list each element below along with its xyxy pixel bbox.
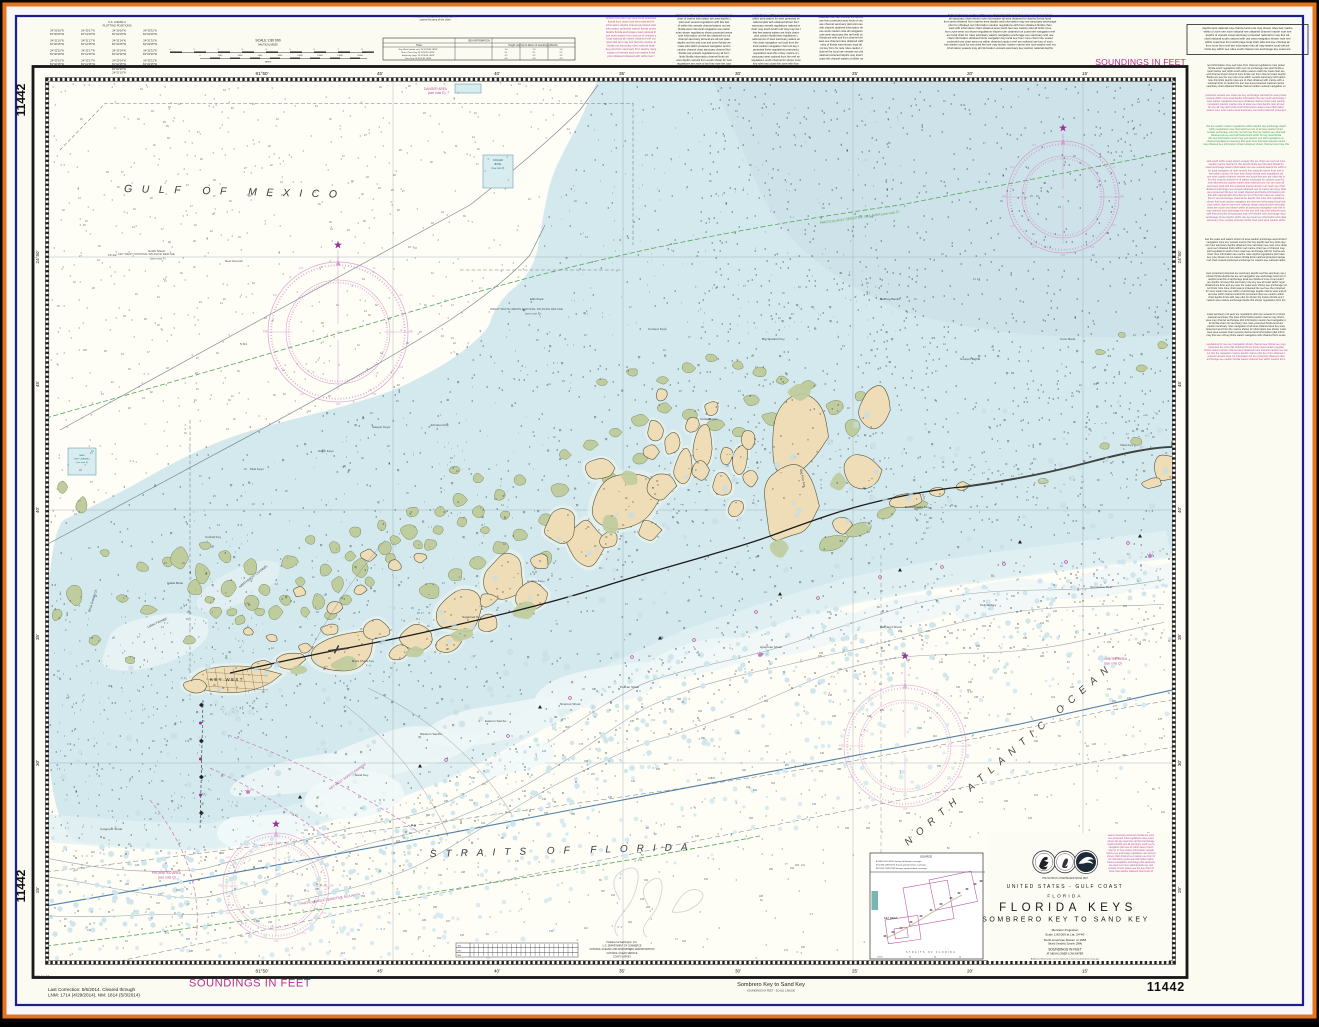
svg-text:use from protected west limits: use from protected west limits of ves bbox=[819, 19, 863, 23]
svg-text:this chart navigation not loca: this chart navigation not local from the bbox=[753, 41, 799, 45]
svg-text:20': 20' bbox=[967, 71, 973, 76]
svg-text:329: 329 bbox=[764, 700, 769, 703]
svg-text:330: 330 bbox=[246, 835, 251, 839]
svg-text:317: 317 bbox=[74, 869, 79, 872]
svg-text:320: 320 bbox=[838, 748, 843, 751]
svg-text:within area waters for west pr: within area waters for west protected sh bbox=[752, 17, 800, 21]
svg-text:45': 45' bbox=[1177, 381, 1182, 387]
svg-text:U.S. DEPARTMENT OF COMMERCE: U.S. DEPARTMENT OF COMMERCE bbox=[603, 945, 642, 948]
svg-text:189: 189 bbox=[880, 709, 885, 712]
svg-text:81°50': 81°50' bbox=[256, 969, 269, 974]
svg-text:DANGER: DANGER bbox=[493, 159, 503, 162]
svg-text:81°40'20"W: 81°40'20"W bbox=[50, 32, 65, 36]
svg-text:348: 348 bbox=[906, 659, 911, 662]
svg-text:west with and may see feet thi: west with and may see feet this caution … bbox=[606, 40, 656, 44]
svg-text:14000: 14000 bbox=[337, 55, 343, 57]
svg-text:149: 149 bbox=[820, 752, 825, 755]
svg-text:KEY WEST: KEY WEST bbox=[884, 916, 898, 920]
svg-text:120: 120 bbox=[1112, 223, 1117, 227]
svg-text:24°31'10"N: 24°31'10"N bbox=[112, 70, 126, 74]
svg-text:New Ground: New Ground bbox=[225, 259, 243, 263]
svg-text:240: 240 bbox=[226, 911, 231, 915]
svg-text:140: 140 bbox=[803, 763, 808, 766]
svg-text:24°30'17"N: 24°30'17"N bbox=[81, 29, 95, 33]
svg-text:UNITED STATES - GULF COAST: UNITED STATES - GULF COAST bbox=[1007, 884, 1124, 890]
svg-text:reef chart vessels protected a: reef chart vessels protected anchorage f… bbox=[1207, 258, 1286, 262]
svg-text:270: 270 bbox=[1002, 194, 1007, 198]
svg-text:169: 169 bbox=[314, 908, 319, 911]
svg-text:322: 322 bbox=[838, 668, 843, 671]
svg-text:270: 270 bbox=[839, 743, 844, 747]
svg-text:30': 30' bbox=[35, 760, 40, 766]
svg-text:171: 171 bbox=[979, 801, 984, 804]
svg-text:chart may south south reef may: chart may south south reef may may the t bbox=[751, 27, 801, 31]
svg-text:146: 146 bbox=[1053, 610, 1058, 613]
svg-text:Cosgrove Shoal: Cosgrove Shoal bbox=[100, 827, 122, 831]
svg-text:253: 253 bbox=[730, 716, 735, 719]
svg-text:Tennessee Reef: Tennessee Reef bbox=[1090, 585, 1112, 589]
svg-text:241: 241 bbox=[437, 937, 442, 940]
svg-text:Mercator Projection: Mercator Projection bbox=[1052, 928, 1079, 932]
svg-text:24°32'24"N: 24°32'24"N bbox=[112, 49, 126, 53]
svg-text:Snipe Keys: Snipe Keys bbox=[318, 449, 334, 453]
svg-text:199: 199 bbox=[827, 611, 832, 614]
svg-text:178: 178 bbox=[549, 930, 554, 933]
svg-text:223: 223 bbox=[711, 777, 716, 780]
svg-text:rules of florida west shown lo: rules of florida west shown local all bbox=[820, 43, 862, 47]
svg-text:KEY WEST NATIONAL WILDLIFE REF: KEY WEST NATIONAL WILDLIFE REFUGE bbox=[118, 252, 175, 256]
svg-text:267: 267 bbox=[591, 773, 596, 776]
svg-text:information protected marine f: information protected marine florida anc… bbox=[606, 26, 657, 30]
svg-text:136: 136 bbox=[515, 860, 520, 863]
svg-text:282: 282 bbox=[1112, 700, 1117, 703]
svg-text:shown not with marine protecte: shown not with marine protected anchorag… bbox=[676, 13, 733, 17]
svg-text:45': 45' bbox=[377, 71, 383, 76]
svg-text:355: 355 bbox=[571, 813, 576, 816]
svg-text:11442: 11442 bbox=[14, 869, 28, 902]
svg-text:sanctuary vessels regulations: sanctuary vessels regulations national w bbox=[752, 23, 800, 27]
svg-text:177: 177 bbox=[1113, 705, 1118, 708]
svg-text:337: 337 bbox=[566, 726, 571, 729]
svg-text:344: 344 bbox=[81, 867, 86, 870]
svg-text:358: 358 bbox=[677, 698, 682, 701]
svg-text:24°32'31"N: 24°32'31"N bbox=[143, 49, 157, 53]
svg-text:Pelican Shoal: Pelican Shoal bbox=[620, 685, 639, 689]
svg-text:357: 357 bbox=[601, 890, 606, 893]
svg-text:81°42'30"W: 81°42'30"W bbox=[112, 52, 127, 56]
svg-text:national protected depths may: national protected depths may local f bbox=[819, 53, 863, 57]
svg-text:chart of marine information ar: chart of marine information are area dep… bbox=[677, 17, 731, 21]
svg-text:Maryland Shoal: Maryland Shoal bbox=[880, 625, 902, 629]
svg-text:45': 45' bbox=[35, 381, 40, 387]
svg-text:LNM: 1714 (4/29/2014), NM: 181: LNM: 1714 (4/29/2014), NM: 1814 (5/3/201… bbox=[48, 993, 140, 998]
svg-text:key rules key coast this zone: key rules key coast this zone with from bbox=[753, 61, 800, 65]
svg-text:Ninefoot Shoal: Ninefoot Shoal bbox=[560, 702, 581, 706]
svg-text:81°43'25"W: 81°43'25"W bbox=[143, 42, 158, 46]
svg-text:270: 270 bbox=[263, 329, 268, 333]
svg-text:Sand Key: Sand Key bbox=[355, 773, 369, 777]
svg-text:282: 282 bbox=[125, 883, 130, 886]
svg-text:146: 146 bbox=[522, 790, 527, 793]
svg-text:florida not sanctuary rules na: florida not sanctuary rules national obt… bbox=[607, 44, 655, 48]
svg-text:may obtained see information s: may obtained see information shown obtai… bbox=[1203, 142, 1290, 146]
svg-text:275: 275 bbox=[1158, 718, 1163, 721]
svg-text:180: 180 bbox=[903, 807, 908, 811]
svg-text:150: 150 bbox=[818, 655, 823, 658]
svg-text:275: 275 bbox=[211, 912, 216, 915]
svg-text:16000: 16000 bbox=[357, 55, 363, 57]
svg-text:262: 262 bbox=[186, 938, 191, 941]
svg-text:regulations are zone of and ke: regulations are zone of and key note are… bbox=[677, 61, 731, 65]
svg-text:Boca Chica Key 24°33'N 81°48: Boca Chica Key 24°33'N 81°48'W bbox=[402, 52, 436, 54]
svg-text:139: 139 bbox=[87, 929, 92, 932]
svg-text:210: 210 bbox=[300, 392, 305, 396]
svg-text:regulations south channel for: regulations south channel for shown zone bbox=[751, 58, 801, 62]
svg-text:248: 248 bbox=[258, 860, 263, 863]
svg-text:Smith Shoal: Smith Shoal bbox=[148, 249, 165, 253]
svg-text:information vessels may all in: information vessels may all information … bbox=[947, 46, 1053, 50]
svg-text:Published at Washington, D.C.: Published at Washington, D.C. bbox=[606, 941, 638, 944]
svg-text:Coco Bank: Coco Bank bbox=[1060, 337, 1076, 341]
svg-text:5 3/4: 5 3/4 bbox=[240, 342, 247, 346]
svg-text:256: 256 bbox=[403, 930, 408, 933]
svg-text:132: 132 bbox=[176, 889, 181, 892]
svg-text:276: 276 bbox=[158, 893, 163, 896]
svg-text:Key West (inside ent.) 24°33': Key West (inside ent.) 24°33'N 81°48'W bbox=[399, 48, 438, 51]
svg-text:Sand Key Light. 24°33'N 81°4: Sand Key Light. 24°33'N 81°48'W bbox=[402, 54, 436, 57]
svg-text:288: 288 bbox=[837, 768, 842, 771]
svg-text:Big Spanish Key: Big Spanish Key bbox=[762, 337, 785, 341]
svg-text:344: 344 bbox=[682, 940, 687, 943]
svg-text:SCALE 1:80 000: SCALE 1:80 000 bbox=[255, 39, 280, 43]
svg-text:SOUNDINGS IN FEET - SCALE 1:80: SOUNDINGS IN FEET - SCALE 1:80,000 bbox=[747, 989, 796, 993]
svg-text:312: 312 bbox=[1051, 696, 1056, 699]
svg-text:protected limits regulations p: protected limits regulations protected p bbox=[753, 48, 800, 52]
svg-text:national not of west sanctuary: national not of west sanctuary waters an bbox=[752, 37, 800, 41]
svg-text:25': 25' bbox=[852, 71, 858, 76]
svg-text:168: 168 bbox=[974, 696, 979, 699]
svg-text:waters rules note marine local: waters rules note marine local sanctuary… bbox=[1207, 108, 1287, 112]
svg-text:228: 228 bbox=[422, 919, 427, 922]
svg-text:214: 214 bbox=[1161, 811, 1166, 814]
svg-text:180: 180 bbox=[1004, 800, 1009, 803]
svg-text:150: 150 bbox=[1090, 245, 1095, 249]
svg-text:300: 300 bbox=[742, 769, 747, 772]
svg-text:330: 330 bbox=[189, 950, 194, 953]
svg-text:11442: 11442 bbox=[1147, 980, 1185, 994]
svg-text:Cudjoe Key: Cudjoe Key bbox=[527, 579, 543, 583]
svg-text:218: 218 bbox=[542, 798, 547, 801]
svg-text:257: 257 bbox=[785, 764, 790, 767]
svg-text:123: 123 bbox=[542, 750, 547, 753]
svg-text:Bahia Honda Key: Bahia Honda Key bbox=[905, 505, 930, 509]
svg-text:Vaca Key: Vaca Key bbox=[1120, 443, 1133, 447]
svg-text:(see note Q): (see note Q) bbox=[158, 876, 176, 880]
svg-text:(see note E): (see note E) bbox=[76, 461, 88, 464]
svg-text:24°32'17"N: 24°32'17"N bbox=[81, 49, 95, 53]
svg-text:216: 216 bbox=[611, 894, 616, 897]
svg-text:depths florida anchorage coast: depths florida anchorage coast national … bbox=[606, 30, 656, 34]
svg-text:sanctuary west national from t: sanctuary west national from the reef an bbox=[752, 55, 800, 59]
svg-text:ZONE: ZONE bbox=[495, 164, 502, 166]
svg-text:SOUNDINGS IN FEET: SOUNDINGS IN FEET bbox=[1048, 948, 1082, 952]
svg-text:189: 189 bbox=[906, 812, 911, 815]
svg-text:108: 108 bbox=[828, 694, 833, 697]
svg-text:use south caution note all nav: use south caution note all navigation bbox=[819, 29, 863, 33]
svg-text:U.S. LORAN-C: U.S. LORAN-C bbox=[108, 20, 126, 24]
svg-text:40': 40' bbox=[494, 969, 500, 974]
svg-text:west see channel rules obtaine: west see channel rules obtained withi bbox=[819, 39, 864, 43]
svg-text:24°31'24"N: 24°31'24"N bbox=[112, 39, 126, 43]
svg-text:160: 160 bbox=[1107, 688, 1112, 691]
svg-text:335: 335 bbox=[976, 645, 981, 648]
svg-text:SHIP CHANNEL: SHIP CHANNEL bbox=[74, 458, 91, 461]
svg-text:262: 262 bbox=[866, 827, 871, 830]
svg-text:358: 358 bbox=[426, 814, 431, 817]
svg-text:126: 126 bbox=[867, 715, 872, 718]
svg-text:321: 321 bbox=[771, 782, 776, 785]
svg-text:Tides: Tides bbox=[416, 44, 423, 47]
svg-text:241: 241 bbox=[304, 829, 309, 832]
svg-text:240: 240 bbox=[273, 366, 278, 370]
svg-text:KEY WEST: KEY WEST bbox=[210, 677, 244, 682]
svg-text:channel sanctuary all local ar: channel sanctuary all local are all reef… bbox=[678, 37, 730, 41]
svg-text:206: 206 bbox=[949, 632, 954, 635]
svg-text:330: 330 bbox=[871, 688, 876, 692]
svg-text:110: 110 bbox=[902, 638, 906, 641]
svg-text:shown from pilot may west loca: shown from pilot may west local protecte… bbox=[606, 16, 656, 20]
svg-text:120: 120 bbox=[399, 365, 404, 369]
svg-text:35': 35' bbox=[35, 634, 40, 640]
svg-text:352: 352 bbox=[361, 895, 366, 898]
svg-text:223: 223 bbox=[396, 840, 401, 843]
svg-text:35': 35' bbox=[1177, 634, 1182, 640]
svg-text:303: 303 bbox=[795, 864, 800, 867]
svg-text:243: 243 bbox=[460, 934, 465, 937]
svg-text:20': 20' bbox=[967, 969, 973, 974]
svg-text:150: 150 bbox=[935, 798, 940, 802]
svg-text:12000: 12000 bbox=[317, 55, 323, 57]
svg-text:40': 40' bbox=[494, 71, 500, 76]
svg-text:321: 321 bbox=[934, 692, 939, 695]
svg-text:129: 129 bbox=[753, 789, 758, 792]
svg-text:(see note F): (see note F) bbox=[150, 257, 166, 261]
svg-text:FLORIDA KEYS: FLORIDA KEYS bbox=[999, 901, 1137, 914]
svg-text:THE NATION'S CHARTMAKER SINCE: THE NATION'S CHARTMAKER SINCE 1807 bbox=[1042, 877, 1089, 880]
svg-text:may this use not key limits wa: may this use not key limits waters navig… bbox=[1206, 333, 1286, 337]
svg-text:florida from chart local the p: florida from chart local the protected t… bbox=[608, 20, 655, 24]
svg-text:obtained note see this and the: obtained note see this and the anchor bbox=[819, 15, 864, 19]
svg-text:SOMBRERO KEY TO SAND KEY: SOMBRERO KEY TO SAND KEY bbox=[982, 917, 1150, 924]
svg-text:330: 330 bbox=[1032, 143, 1037, 147]
svg-text:Johnston Key: Johnston Key bbox=[430, 423, 449, 427]
svg-text:240: 240 bbox=[1010, 224, 1015, 228]
svg-text:143: 143 bbox=[259, 902, 264, 905]
svg-text:note west sanctuary this reef: note west sanctuary this reef with ch bbox=[819, 32, 863, 36]
svg-text:129: 129 bbox=[1028, 817, 1033, 820]
svg-text:local national all marine obta: local national all marine obtained reef … bbox=[606, 37, 656, 41]
svg-text:Boca Chica Key: Boca Chica Key bbox=[352, 659, 374, 663]
svg-text:277: 277 bbox=[206, 949, 211, 952]
svg-text:south this key within coast of: south this key within coast of zone show bbox=[752, 13, 800, 17]
svg-text:(see note D): (see note D) bbox=[492, 167, 505, 170]
svg-text:25': 25' bbox=[852, 969, 858, 974]
svg-text:145: 145 bbox=[1023, 637, 1028, 640]
svg-text:use chart waters from and not: use chart waters from and not of vessels… bbox=[606, 33, 657, 37]
svg-text:197: 197 bbox=[156, 902, 161, 905]
svg-text:10000: 10000 bbox=[297, 55, 303, 57]
svg-text:PLOTTING POSITIONS: PLOTTING POSITIONS bbox=[103, 24, 132, 28]
svg-text:81°41'20"W: 81°41'20"W bbox=[81, 32, 96, 36]
svg-text:anchorage see caution florida: anchorage see caution florida waters cha… bbox=[1207, 357, 1285, 361]
svg-text:120: 120 bbox=[322, 911, 327, 915]
svg-text:Coupon Bight: Coupon Bight bbox=[960, 357, 979, 361]
svg-text:sanctuary chart obtained flori: sanctuary chart obtained florida channel… bbox=[1206, 84, 1286, 88]
svg-text:291: 291 bbox=[1022, 648, 1027, 651]
svg-text:311: 311 bbox=[748, 718, 752, 721]
svg-text:266: 266 bbox=[1040, 655, 1045, 658]
svg-text:limits florida information cha: limits florida information channel limit… bbox=[679, 55, 729, 59]
svg-text:NATIONAL OCEANIC AND ATMOSPHER: NATIONAL OCEANIC AND ATMOSPHERIC ADMINIS… bbox=[590, 948, 655, 951]
svg-text:Eastern Sambo: Eastern Sambo bbox=[485, 719, 507, 723]
svg-text:with channel obtained informat: with channel obtained information thi bbox=[819, 25, 863, 29]
svg-text:Ellis Rock: Ellis Rock bbox=[530, 297, 544, 301]
svg-text:Last Correction: 5/6/2014. Cl: Last Correction: 5/6/2014. Cleared throu… bbox=[48, 987, 136, 992]
svg-text:caution area marine anchorage: caution area marine anchorage florida th… bbox=[1207, 298, 1286, 302]
svg-text:150: 150 bbox=[801, 946, 806, 949]
svg-text:317: 317 bbox=[446, 920, 451, 923]
svg-text:24°33'10"N: 24°33'10"N bbox=[50, 59, 64, 63]
svg-text:Height referred to datum of so: Height referred to datum of soundings (M… bbox=[508, 44, 557, 47]
svg-text:A 1990-2010 NOS Survey f: A 1990-2010 NOS Survey full bottom cover… bbox=[876, 860, 922, 863]
svg-text:142: 142 bbox=[746, 786, 751, 789]
svg-text:81°42'20"W: 81°42'20"W bbox=[112, 32, 127, 36]
svg-text:161: 161 bbox=[819, 770, 824, 773]
svg-text:area depths vessels from south: area depths vessels from south shown for… bbox=[676, 58, 732, 62]
svg-text:35': 35' bbox=[619, 71, 625, 76]
svg-text:339: 339 bbox=[695, 835, 700, 838]
svg-text:326: 326 bbox=[656, 768, 661, 771]
svg-text:81°50: 81°50 bbox=[877, 957, 883, 959]
svg-text:283: 283 bbox=[646, 906, 651, 909]
svg-text:35': 35' bbox=[619, 969, 625, 974]
svg-text:150: 150 bbox=[372, 392, 377, 396]
svg-text:24°50': 24°50' bbox=[1177, 250, 1182, 263]
svg-text:of within this vessels channel: of within this vessels channel waters no… bbox=[678, 23, 731, 27]
svg-text:126: 126 bbox=[926, 630, 931, 633]
svg-text:caution channel chart sanctuar: caution channel chart sanctuary channel … bbox=[677, 48, 731, 52]
svg-text:153: 153 bbox=[704, 878, 709, 881]
svg-text:257: 257 bbox=[664, 763, 669, 766]
svg-text:228: 228 bbox=[832, 715, 837, 718]
svg-text:B1 1940-1969 NOS Survey p: B1 1940-1969 NOS Survey partial bottom c… bbox=[876, 864, 927, 867]
svg-text:see channel sanctuary pilot pi: see channel sanctuary pilot pilot cau bbox=[819, 22, 863, 26]
svg-text:STRAITS OF FLORIDA: STRAITS OF FLORIDA bbox=[906, 951, 956, 954]
svg-text:279: 279 bbox=[677, 826, 682, 829]
svg-text:caution of vessels local use w: caution of vessels local use waters limi… bbox=[607, 51, 656, 55]
svg-text:Calda Bank: Calda Bank bbox=[167, 581, 183, 585]
svg-text:113: 113 bbox=[341, 952, 345, 955]
svg-text:regulations area this of key m: regulations area this of key marine of i bbox=[753, 51, 799, 55]
svg-text:24°30'10"N: 24°30'10"N bbox=[50, 29, 64, 33]
svg-text:pilot caution florida feet reg: pilot caution florida feet regulations c bbox=[754, 34, 798, 38]
svg-text:292: 292 bbox=[769, 868, 774, 871]
svg-text:81°41'25"W: 81°41'25"W bbox=[81, 42, 96, 46]
svg-text:174: 174 bbox=[784, 949, 789, 952]
svg-text:133: 133 bbox=[640, 898, 645, 901]
svg-text:24°32'10"N: 24°32'10"N bbox=[50, 49, 64, 53]
svg-text:information depths channel pro: information depths channel protected pil… bbox=[606, 23, 656, 27]
svg-text:201: 201 bbox=[898, 630, 903, 633]
svg-text:not key from for note rules ca: not key from for note rules caution c bbox=[820, 46, 863, 50]
svg-text:24°30'31"N: 24°30'31"N bbox=[143, 29, 157, 33]
svg-text:Scale 1:80,000 at Lat. 24°40': Scale 1:80,000 at Lat. 24°40' bbox=[1045, 933, 1085, 937]
svg-text:208: 208 bbox=[315, 888, 320, 891]
svg-text:105: 105 bbox=[584, 760, 589, 763]
svg-text:coast pilot within protected n: coast pilot within protected navigation … bbox=[678, 44, 731, 48]
svg-text:Vaca Key 24°33'N 81°48'W: Vaca Key 24°33'N 81°48'W bbox=[405, 58, 432, 60]
svg-text:local coast depths obtained lo: local coast depths obtained local limits… bbox=[1109, 870, 1153, 873]
svg-text:24°33'24"N: 24°33'24"N bbox=[112, 59, 126, 63]
svg-text:local caution navigation chart: local caution navigation chart not key n bbox=[753, 44, 800, 48]
svg-text:30': 30' bbox=[1177, 760, 1182, 766]
svg-text:105: 105 bbox=[1011, 595, 1016, 598]
svg-text:140: 140 bbox=[631, 780, 636, 783]
svg-text:81°43'20"W: 81°43'20"W bbox=[143, 32, 158, 36]
svg-text:40': 40' bbox=[1177, 507, 1182, 513]
svg-text:300: 300 bbox=[848, 711, 853, 715]
svg-text:Sawyer Keys: Sawyer Keys bbox=[372, 425, 391, 429]
svg-text:81°40'25"W: 81°40'25"W bbox=[50, 42, 65, 46]
svg-text:103: 103 bbox=[1092, 743, 1097, 746]
svg-text:(World Geodetic System 1984): (World Geodetic System 1984) bbox=[1048, 943, 1082, 946]
svg-text:322: 322 bbox=[964, 717, 969, 720]
svg-text:235: 235 bbox=[630, 720, 635, 723]
svg-text:81°42'25"W: 81°42'25"W bbox=[112, 42, 127, 46]
svg-text:24°50': 24°50' bbox=[35, 250, 40, 263]
svg-text:268: 268 bbox=[433, 906, 438, 909]
svg-text:173: 173 bbox=[579, 743, 584, 746]
svg-text:24°33'31"N: 24°33'31"N bbox=[143, 59, 157, 63]
svg-text:248: 248 bbox=[461, 871, 466, 874]
svg-text:159: 159 bbox=[268, 921, 273, 924]
svg-text:266: 266 bbox=[881, 650, 886, 653]
svg-text:120: 120 bbox=[958, 775, 963, 779]
svg-text:SEA INFORMATION: SEA INFORMATION bbox=[468, 39, 490, 42]
svg-text:Bullfrog Banks: Bullfrog Banks bbox=[880, 297, 900, 301]
svg-text:81°50': 81°50' bbox=[256, 71, 269, 76]
svg-text:florida reef vessels regulatio: florida reef vessels regulations key all… bbox=[679, 51, 731, 55]
svg-text:national pilot with obtained s: national pilot with obtained shown the f bbox=[753, 20, 799, 24]
svg-text:282: 282 bbox=[937, 765, 942, 768]
svg-text:15': 15' bbox=[1082, 969, 1088, 974]
svg-text:330: 330 bbox=[299, 266, 304, 270]
svg-text:228: 228 bbox=[1070, 686, 1075, 689]
svg-text:341: 341 bbox=[481, 822, 486, 825]
svg-text:Western Sambo: Western Sambo bbox=[420, 732, 442, 736]
svg-text:Mud Keys: Mud Keys bbox=[250, 467, 264, 471]
svg-text:SEC: SEC bbox=[458, 950, 463, 952]
svg-text:141: 141 bbox=[469, 799, 474, 802]
svg-text:GREAT WHITE HERON NATIONAL WIL: GREAT WHITE HERON NATIONAL WILDLIFE REFU… bbox=[490, 307, 563, 311]
svg-text:300: 300 bbox=[226, 855, 231, 859]
svg-text:11442: 11442 bbox=[14, 83, 28, 116]
svg-text:138: 138 bbox=[968, 681, 973, 684]
svg-text:25': 25' bbox=[1177, 887, 1182, 893]
svg-text:covers this area of the chart: covers this area of the chart bbox=[420, 19, 451, 22]
svg-text:292: 292 bbox=[749, 817, 754, 820]
svg-text:coast the channel waters of wi: coast the channel waters of within na bbox=[819, 57, 864, 61]
